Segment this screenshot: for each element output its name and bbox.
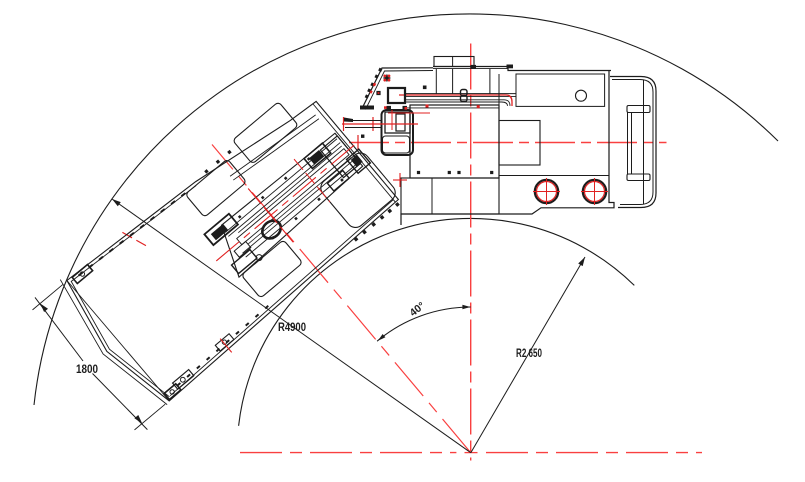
svg-text:1800: 1800 xyxy=(76,362,98,376)
svg-text:R4900: R4900 xyxy=(278,320,306,334)
svg-text:R2 650: R2 650 xyxy=(516,346,542,360)
